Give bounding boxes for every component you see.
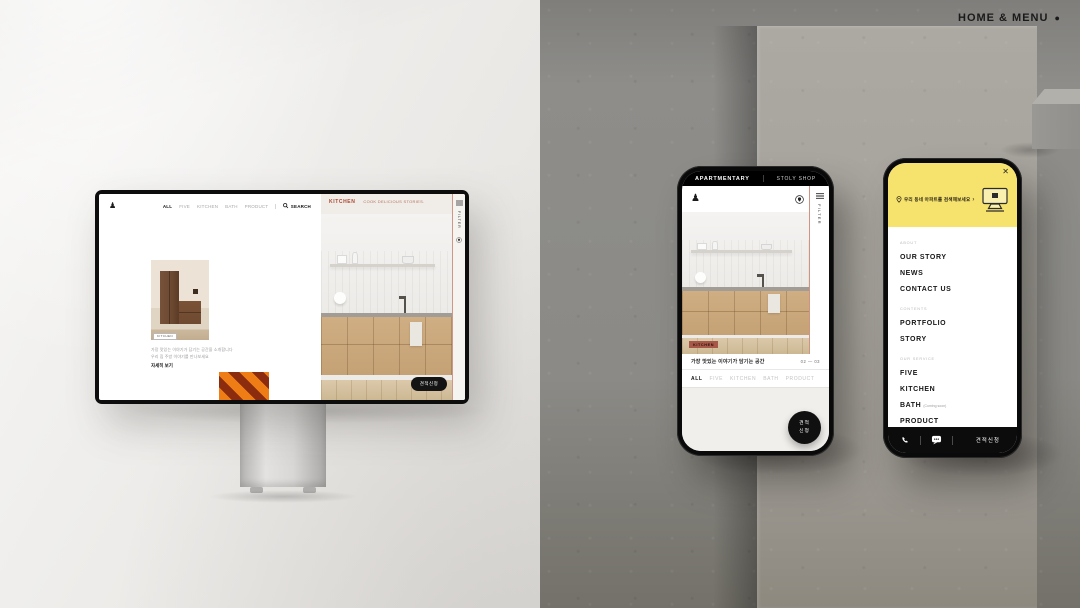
- filter-kitchen[interactable]: KITCHEN: [730, 376, 756, 382]
- app-header: ♟: [682, 186, 829, 212]
- home-menu-text: HOME & MENU: [958, 12, 1048, 24]
- monitor-stand: [240, 403, 326, 487]
- nav-item-bath[interactable]: BATH: [225, 204, 237, 209]
- menu-item-story[interactable]: STORY: [900, 336, 1005, 343]
- brand-label[interactable]: APARTMENTARY: [695, 176, 750, 182]
- phone2-screen: ✕ 우리 동네 아파트를 검색해보세요 › ABOUT OUR STORY NE…: [888, 163, 1017, 453]
- website-left-panel: ♟ ALL FIVE KITCHEN BATH PRODUCT SEARCH: [99, 194, 321, 400]
- faucet-art: [404, 296, 406, 313]
- phone1-screen: APARTMENTARY STOLY SHOP ♟ FILTER: [682, 171, 829, 451]
- bottom-action-bar: 견적신청: [888, 427, 1017, 453]
- menu-item-text: PRODUCT: [900, 418, 939, 425]
- menu-item-bath[interactable]: BATH (Coming soon): [900, 402, 1005, 409]
- shop-label[interactable]: STOLY SHOP: [777, 176, 816, 182]
- desktop-computer-illustration: [980, 187, 1010, 213]
- menu-item-contact-us[interactable]: CONTACT US: [900, 286, 1005, 293]
- promo-banner[interactable]: ✕ 우리 동네 아파트를 검색해보세요 ›: [888, 163, 1017, 227]
- story-line-2: 우리 집 주방 이야기를 만나보세요: [151, 354, 209, 360]
- kitchen-title: KITCHEN: [329, 199, 355, 205]
- location-pin-icon[interactable]: [795, 195, 804, 204]
- apartmentary-logo-icon[interactable]: ♟: [109, 202, 116, 210]
- menu-item-text: BATH: [900, 402, 921, 409]
- nav-divider: [275, 204, 276, 209]
- section-label-about: ABOUT: [900, 241, 1005, 245]
- filter-five[interactable]: FIVE: [710, 376, 724, 382]
- topbar-divider: [763, 175, 764, 182]
- fab-line-2: 신청: [799, 428, 810, 435]
- menu-item-text: CONTACT US: [900, 286, 951, 293]
- shelf-dish-art: [697, 243, 707, 250]
- hamburger-icon[interactable]: [816, 193, 824, 199]
- faucet-art: [762, 274, 764, 287]
- banner-text: 우리 동네 아파트를 검색해보세요: [904, 197, 970, 203]
- page-indicator: 02 — 03: [801, 359, 820, 364]
- card-title-row: 가장 맛있는 이야기가 담기는 공간 02 — 03: [682, 354, 829, 370]
- section-label-our-service: OUR SERVICE: [900, 357, 1005, 361]
- menu-panel: ABOUT OUR STORY NEWS CONTACT US CONTENTS…: [888, 227, 1017, 427]
- rail-filter-label[interactable]: FILTER: [817, 204, 822, 225]
- orange-stripe-banner: [219, 372, 269, 400]
- desktop-website: ♟ ALL FIVE KITCHEN BATH PRODUCT SEARCH: [99, 194, 465, 400]
- shelf-bowl-art: [402, 256, 414, 264]
- menu-item-text: PORTFOLIO: [900, 320, 946, 327]
- chat-icon[interactable]: [931, 435, 942, 445]
- menu-item-text: OUR STORY: [900, 254, 947, 261]
- chevron-right-icon: ›: [972, 197, 974, 203]
- kitchen-photo[interactable]: KITCHEN: [682, 212, 809, 354]
- close-icon[interactable]: ✕: [1002, 168, 1009, 176]
- kitchen-shelf-art: [691, 250, 793, 252]
- nav-item-all[interactable]: ALL: [163, 204, 172, 209]
- tall-cabinet-art: [160, 271, 179, 324]
- low-cabinet-art: [179, 301, 201, 324]
- search-label: SEARCH: [291, 204, 311, 209]
- menu-item-five[interactable]: FIVE: [900, 370, 1005, 377]
- filter-bath[interactable]: BATH: [763, 376, 778, 382]
- section-label-contents: CONTENTS: [900, 307, 1005, 311]
- search-icon: [283, 203, 289, 209]
- quote-request-button[interactable]: 견적신청: [976, 436, 1000, 444]
- shelf-bowl-art: [761, 244, 772, 250]
- desktop-monitor: ♟ ALL FIVE KITCHEN BATH PRODUCT SEARCH: [95, 190, 469, 404]
- nav-item-five[interactable]: FIVE: [179, 204, 190, 209]
- product-photo[interactable]: [151, 260, 209, 340]
- cabinets-art: [682, 291, 809, 335]
- menu-item-portfolio[interactable]: PORTFOLIO: [900, 320, 1005, 327]
- story-line-1: 가장 맛있는 이야기가 담기는 공간을 소개합니다: [151, 347, 233, 353]
- table-lamp-art: [695, 272, 706, 283]
- app-top-bar: APARTMENTARY STOLY SHOP: [682, 171, 829, 186]
- menu-item-text: NEWS: [900, 270, 923, 277]
- story-more-link[interactable]: 자세히 보기: [151, 363, 173, 369]
- location-pin-icon[interactable]: [456, 237, 462, 243]
- wall-frame-art: [193, 289, 198, 294]
- menu-item-product[interactable]: PRODUCT: [900, 418, 1005, 425]
- app-side-rail: FILTER: [809, 186, 829, 354]
- towel-art: [410, 322, 422, 346]
- stand-shadow: [208, 490, 358, 503]
- home-menu-label[interactable]: HOME & MENU ●: [958, 12, 1061, 24]
- quote-request-button[interactable]: 견적신청: [411, 377, 447, 391]
- apartmentary-logo-icon[interactable]: ♟: [691, 194, 700, 204]
- filter-tabs: ALL FIVE KITCHEN BATH PRODUCT: [682, 371, 829, 387]
- rail-filter-label[interactable]: FILTER: [457, 211, 461, 229]
- menu-item-our-story[interactable]: OUR STORY: [900, 254, 1005, 261]
- coming-soon-note: (Coming soon): [923, 404, 946, 408]
- card-title: 가장 맛있는 이야기가 담기는 공간: [691, 358, 765, 365]
- search-button[interactable]: SEARCH: [283, 203, 311, 209]
- website-side-rail: FILTER: [452, 194, 465, 400]
- menu-item-kitchen[interactable]: KITCHEN: [900, 386, 1005, 393]
- nav-item-product[interactable]: PRODUCT: [245, 204, 269, 209]
- menu-item-text: KITCHEN: [900, 386, 935, 393]
- phone-call-icon[interactable]: [901, 436, 910, 445]
- menu-item-text: STORY: [900, 336, 927, 343]
- website-navbar: ♟ ALL FIVE KITCHEN BATH PRODUCT SEARCH: [99, 194, 321, 218]
- towel-art: [768, 294, 779, 312]
- photo-tag-chip: KITCHEN: [153, 333, 177, 340]
- cabinets-art: [321, 317, 452, 375]
- menu-item-news[interactable]: NEWS: [900, 270, 1005, 277]
- filter-product[interactable]: PRODUCT: [786, 376, 815, 382]
- cube-front-face: [1032, 104, 1080, 149]
- phone-menu-mockup: ✕ 우리 동네 아파트를 검색해보세요 › ABOUT OUR STORY NE…: [883, 158, 1022, 458]
- menu-item-text: FIVE: [900, 370, 918, 377]
- kitchen-photo[interactable]: [321, 214, 452, 400]
- fab-line-1: 견적: [799, 420, 810, 427]
- kitchen-shelf-art: [330, 264, 435, 267]
- nav-items: ALL FIVE KITCHEN BATH PRODUCT SEARCH: [163, 203, 311, 209]
- phone-app-mockup: APARTMENTARY STOLY SHOP ♟ FILTER: [677, 166, 834, 456]
- banner-content: 우리 동네 아파트를 검색해보세요 ›: [896, 196, 974, 203]
- bar-divider: [952, 436, 953, 445]
- mockup-scene: HOME & MENU ● ♟ ALL FIVE KITCHEN BATH PR…: [0, 0, 1080, 608]
- quote-request-fab[interactable]: 견적 신청: [788, 411, 821, 444]
- location-pin-icon: [896, 196, 902, 203]
- shelf-dish-art: [337, 255, 347, 264]
- bar-divider: [920, 436, 921, 445]
- shelf-bottle-art: [352, 252, 357, 264]
- filter-all[interactable]: ALL: [691, 376, 703, 382]
- hamburger-icon[interactable]: [456, 200, 463, 206]
- website-kitchen-panel: KITCHEN COOK DELICIOUS STORIES.: [321, 194, 465, 400]
- table-lamp-art: [334, 292, 346, 304]
- shelf-bottle-art: [712, 241, 717, 250]
- nav-item-kitchen[interactable]: KITCHEN: [197, 204, 218, 209]
- menu-dot-icon: ●: [1054, 13, 1060, 23]
- kitchen-subtitle: COOK DELICIOUS STORIES.: [363, 199, 424, 204]
- kitchen-section-header: KITCHEN COOK DELICIOUS STORIES.: [329, 199, 424, 205]
- category-badge: KITCHEN: [689, 341, 718, 348]
